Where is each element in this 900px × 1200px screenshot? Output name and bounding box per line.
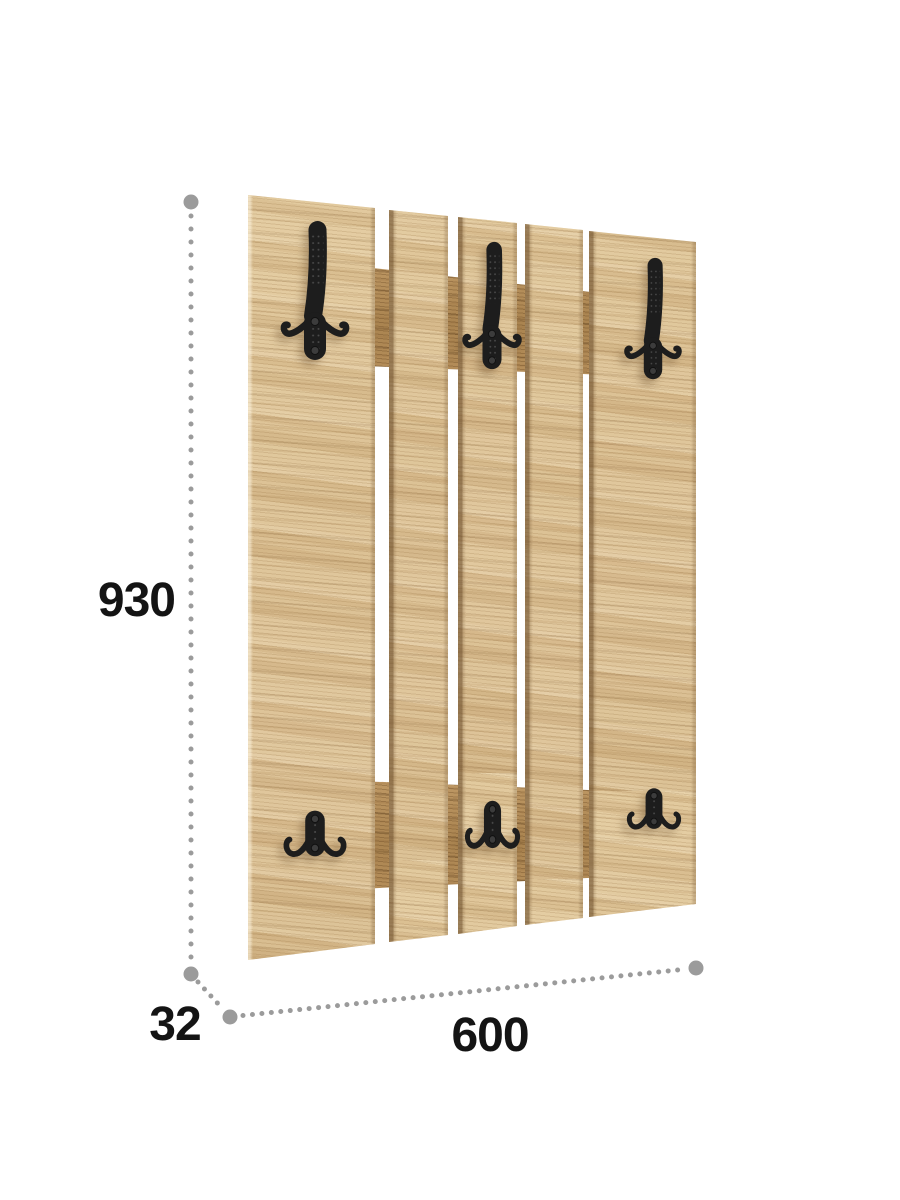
coat-hook-double-icon: [279, 808, 351, 862]
coat-hook-double-icon: [461, 798, 524, 854]
height-dimension-label: 930: [55, 577, 175, 625]
dimension-endpoint-dot: [184, 967, 199, 982]
coat-hook-double-icon: [623, 786, 685, 834]
wood-slat-4: [525, 223, 583, 926]
dimension-endpoint-dot: [184, 195, 199, 210]
coat-hook-tall-icon: [460, 241, 524, 371]
dimension-endpoint-dot: [689, 961, 704, 976]
coat-hook-tall-icon: [278, 220, 352, 362]
width-dimension-label: 600: [428, 1012, 552, 1060]
coat-rack-product-image: 930 32 600: [0, 0, 900, 1200]
coat-hook-tall-icon: [622, 257, 684, 381]
depth-dimension-label: 32: [125, 1001, 225, 1049]
wood-slat-2: [389, 209, 448, 943]
